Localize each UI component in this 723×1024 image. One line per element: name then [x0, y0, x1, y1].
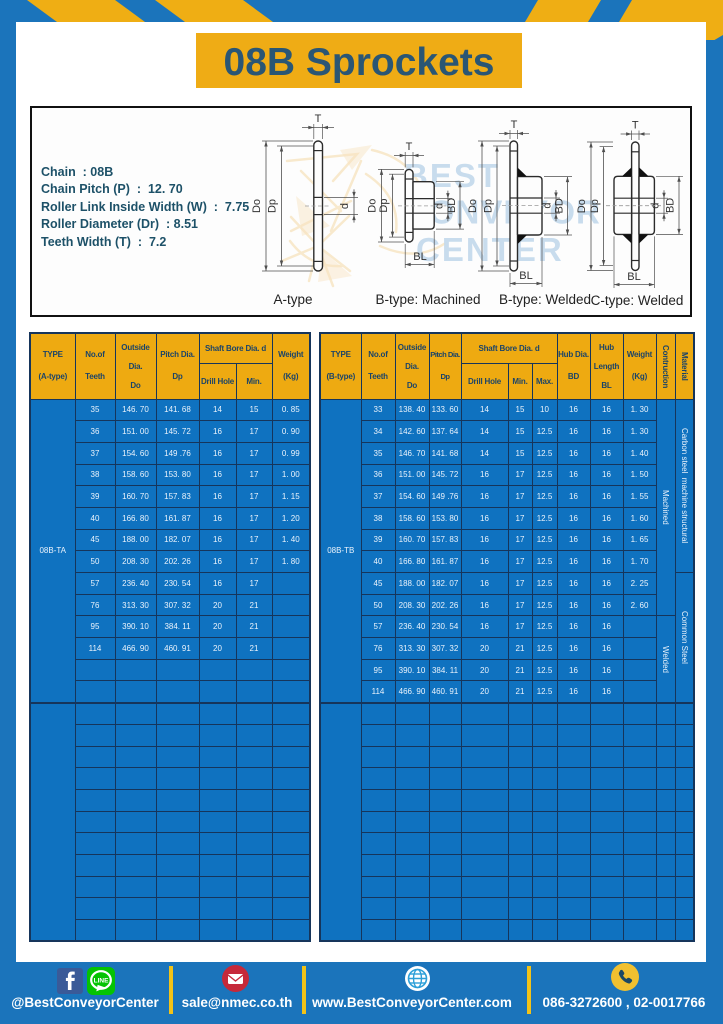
svg-text:BL: BL: [627, 271, 640, 283]
svg-text:B-type: Machined: B-type: Machined: [375, 292, 480, 307]
svg-text:Do: Do: [467, 199, 479, 213]
svg-text:Do: Do: [251, 199, 263, 213]
svg-text:BL: BL: [413, 251, 426, 263]
svg-text:T: T: [511, 119, 518, 131]
svg-text:T: T: [632, 119, 639, 131]
svg-text:Dp: Dp: [483, 199, 495, 213]
svg-text:BL: BL: [519, 270, 532, 282]
svg-text:BD: BD: [553, 198, 565, 213]
svg-text:Dp: Dp: [378, 199, 390, 213]
svg-text:d: d: [542, 203, 554, 209]
svg-text:C-type: Welded: C-type: Welded: [591, 293, 684, 308]
svg-text:Do: Do: [367, 199, 379, 213]
svg-text:LINE: LINE: [94, 978, 109, 985]
svg-text:Dp: Dp: [589, 199, 601, 213]
svg-text:d: d: [650, 203, 662, 209]
svg-text:Dp: Dp: [267, 199, 279, 213]
svg-text:BD: BD: [446, 198, 458, 213]
svg-text:A-type: A-type: [273, 292, 312, 307]
svg-text:T: T: [315, 113, 322, 125]
svg-text:d: d: [339, 203, 351, 209]
svg-text:T: T: [406, 141, 413, 153]
svg-text:Do: Do: [576, 199, 588, 213]
svg-text:BD: BD: [665, 198, 677, 213]
svg-text:B-type: Welded: B-type: Welded: [499, 292, 591, 307]
svg-text:d: d: [433, 203, 445, 209]
